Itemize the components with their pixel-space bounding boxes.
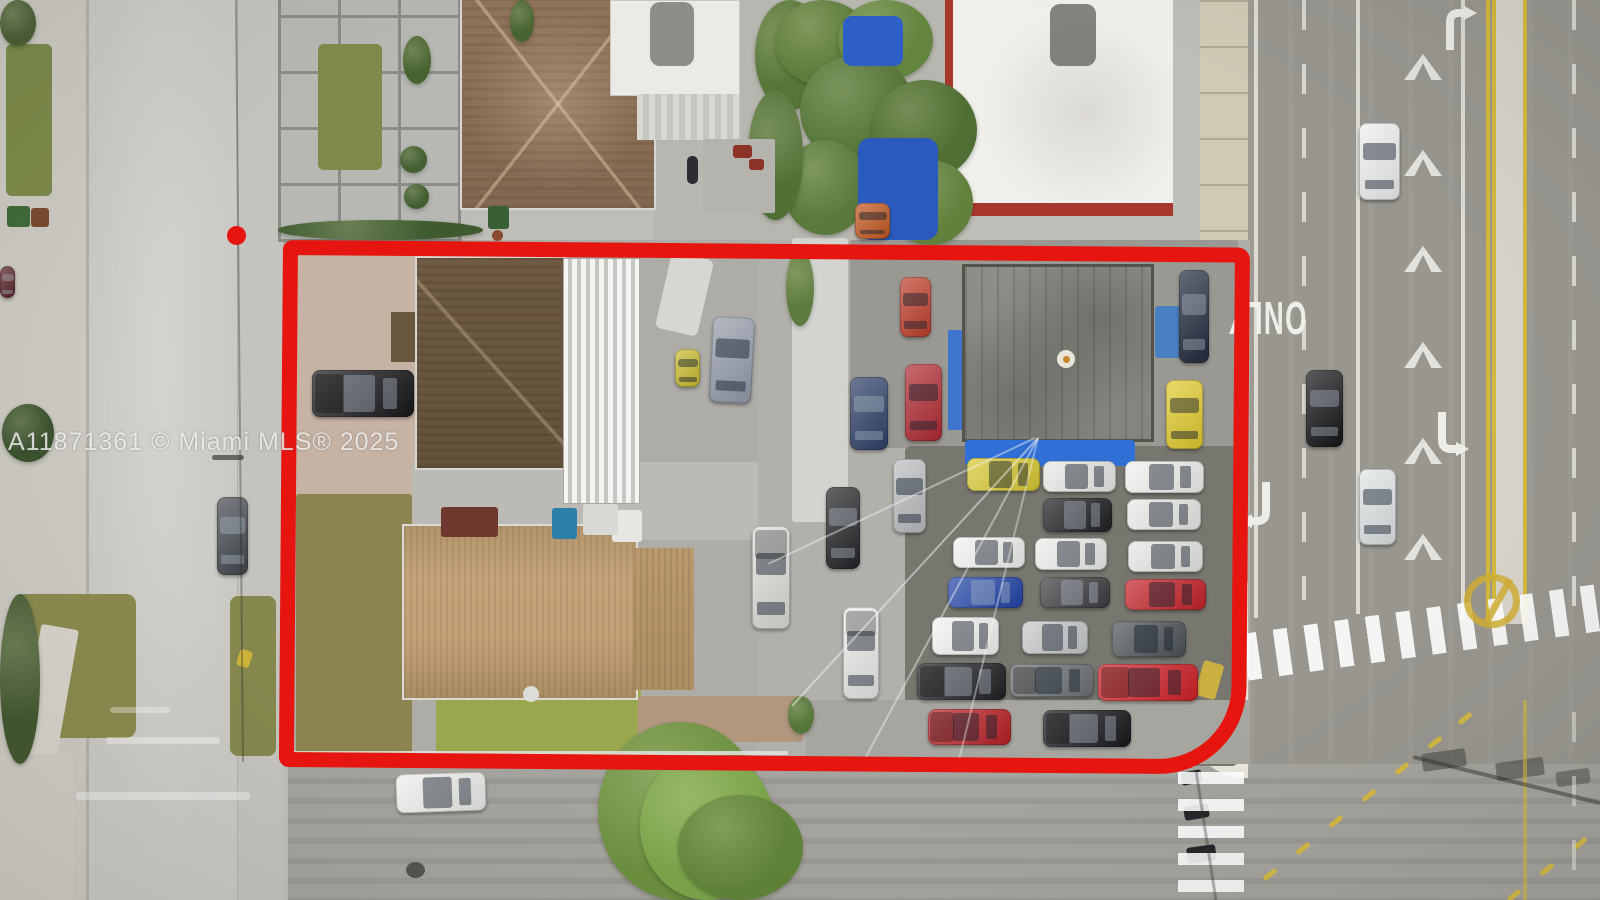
chevron-marking xyxy=(1404,534,1442,560)
line xyxy=(1195,770,1218,900)
aerial-photo: ONLY A11871361 © Miami MLS® 2025 xyxy=(0,0,1600,900)
watermark: A11871361 © Miami MLS® 2025 xyxy=(8,428,399,457)
chevron-marking xyxy=(1404,438,1442,464)
line xyxy=(1413,755,1600,805)
chevron-marking xyxy=(1404,342,1442,368)
chevron-marking xyxy=(1404,246,1442,272)
chevron-marking xyxy=(1404,54,1442,80)
boundary-outline xyxy=(279,240,1250,775)
boundary-dot xyxy=(227,226,246,245)
chevron-marking xyxy=(1404,150,1442,176)
line xyxy=(235,0,244,762)
